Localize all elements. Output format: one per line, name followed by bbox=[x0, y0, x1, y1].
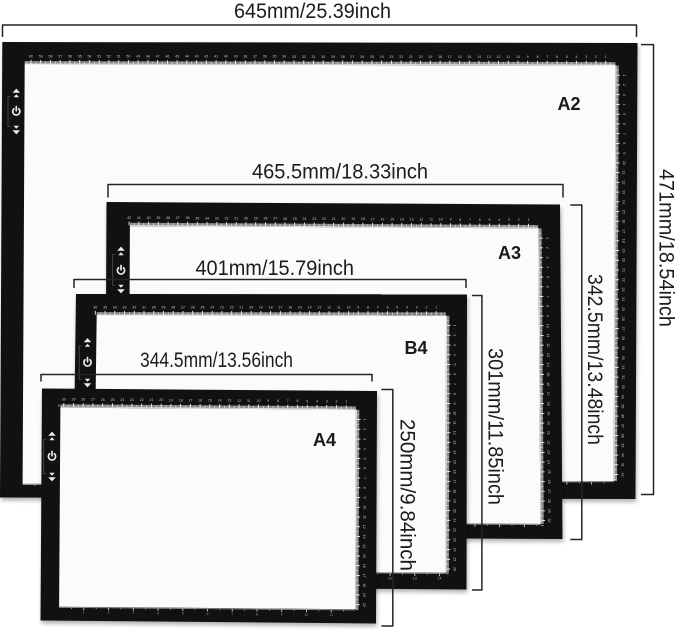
svg-text:35: 35 bbox=[273, 55, 277, 59]
svg-text:52: 52 bbox=[107, 55, 111, 59]
svg-text:33: 33 bbox=[215, 216, 219, 220]
svg-text:50: 50 bbox=[126, 55, 130, 59]
svg-text:57: 57 bbox=[58, 54, 62, 58]
svg-text:54: 54 bbox=[88, 54, 92, 58]
svg-text:1: 1 bbox=[363, 419, 367, 421]
svg-text:6: 6 bbox=[207, 612, 209, 616]
svg-text:32: 32 bbox=[225, 217, 229, 221]
svg-text:7: 7 bbox=[287, 399, 289, 403]
svg-text:22: 22 bbox=[399, 55, 403, 59]
svg-text:2: 2 bbox=[518, 218, 520, 222]
svg-text:8: 8 bbox=[277, 399, 279, 403]
svg-text:17: 17 bbox=[278, 306, 282, 310]
svg-text:8: 8 bbox=[256, 612, 258, 616]
svg-text:A4: A4 bbox=[313, 430, 336, 450]
svg-text:8: 8 bbox=[362, 487, 366, 489]
svg-text:6: 6 bbox=[297, 399, 299, 403]
svg-text:21: 21 bbox=[452, 518, 456, 522]
svg-text:13: 13 bbox=[317, 306, 321, 310]
svg-text:18: 18 bbox=[362, 583, 366, 587]
svg-text:38: 38 bbox=[166, 216, 170, 220]
svg-text:19: 19 bbox=[169, 398, 173, 402]
svg-text:40: 40 bbox=[147, 216, 151, 220]
svg-text:12: 12 bbox=[327, 306, 331, 310]
svg-text:16: 16 bbox=[380, 217, 384, 221]
svg-text:1: 1 bbox=[605, 55, 607, 59]
svg-text:30: 30 bbox=[321, 55, 325, 59]
svg-text:6: 6 bbox=[453, 373, 457, 375]
svg-text:27: 27 bbox=[547, 489, 551, 493]
svg-text:29: 29 bbox=[162, 305, 166, 309]
svg-text:20: 20 bbox=[341, 217, 345, 221]
svg-text:21: 21 bbox=[239, 305, 243, 309]
svg-text:34: 34 bbox=[113, 305, 117, 309]
svg-text:3: 3 bbox=[622, 94, 626, 96]
svg-text:1: 1 bbox=[345, 400, 347, 404]
svg-text:22: 22 bbox=[140, 398, 144, 402]
svg-text:20: 20 bbox=[452, 509, 456, 513]
svg-text:9: 9 bbox=[622, 152, 626, 154]
svg-text:19: 19 bbox=[362, 593, 366, 597]
svg-text:31: 31 bbox=[312, 55, 316, 59]
svg-text:9: 9 bbox=[357, 306, 359, 310]
svg-text:19: 19 bbox=[259, 305, 263, 309]
svg-text:26: 26 bbox=[621, 317, 625, 321]
svg-text:3: 3 bbox=[416, 306, 418, 310]
svg-text:21: 21 bbox=[332, 217, 336, 221]
svg-text:3: 3 bbox=[545, 257, 549, 259]
svg-text:5: 5 bbox=[396, 306, 398, 310]
svg-text:5: 5 bbox=[566, 55, 568, 59]
svg-text:14: 14 bbox=[438, 577, 442, 581]
svg-text:16: 16 bbox=[198, 399, 202, 403]
svg-text:7: 7 bbox=[469, 218, 471, 222]
svg-text:34: 34 bbox=[282, 55, 286, 59]
svg-text:32: 32 bbox=[302, 55, 306, 59]
svg-text:26: 26 bbox=[452, 567, 456, 571]
svg-text:2: 2 bbox=[363, 428, 367, 430]
svg-text:28: 28 bbox=[621, 336, 625, 340]
svg-text:34: 34 bbox=[205, 216, 209, 220]
svg-text:51: 51 bbox=[117, 55, 121, 59]
svg-text:37: 37 bbox=[176, 216, 180, 220]
svg-text:28: 28 bbox=[171, 305, 175, 309]
svg-text:3: 3 bbox=[363, 438, 367, 440]
svg-text:7: 7 bbox=[546, 55, 548, 59]
svg-text:56: 56 bbox=[68, 54, 72, 58]
svg-text:344.5mm/13.56inch: 344.5mm/13.56inch bbox=[140, 348, 293, 372]
svg-text:19: 19 bbox=[621, 249, 625, 253]
svg-text:12: 12 bbox=[622, 180, 626, 184]
svg-text:58: 58 bbox=[49, 54, 53, 58]
svg-text:13: 13 bbox=[362, 535, 366, 539]
svg-text:31: 31 bbox=[142, 305, 146, 309]
svg-text:301mm/11.85inch: 301mm/11.85inch bbox=[483, 348, 507, 505]
svg-text:27: 27 bbox=[91, 398, 95, 402]
svg-text:27: 27 bbox=[621, 327, 625, 331]
svg-text:20: 20 bbox=[362, 603, 366, 607]
svg-text:13: 13 bbox=[227, 399, 231, 403]
svg-text:15: 15 bbox=[546, 372, 550, 376]
svg-text:19: 19 bbox=[546, 411, 550, 415]
svg-text:24: 24 bbox=[210, 305, 214, 309]
svg-text:21: 21 bbox=[149, 398, 153, 402]
svg-text:34: 34 bbox=[621, 395, 625, 399]
svg-text:5: 5 bbox=[453, 364, 457, 366]
svg-text:44: 44 bbox=[185, 55, 189, 59]
svg-text:5: 5 bbox=[622, 113, 626, 115]
svg-text:7: 7 bbox=[622, 133, 626, 135]
svg-text:6: 6 bbox=[363, 467, 367, 469]
svg-text:15: 15 bbox=[453, 460, 457, 464]
svg-text:10: 10 bbox=[546, 324, 550, 328]
svg-text:18: 18 bbox=[546, 402, 550, 406]
svg-text:40: 40 bbox=[621, 453, 625, 457]
svg-text:24: 24 bbox=[380, 55, 384, 59]
svg-text:2: 2 bbox=[595, 55, 597, 59]
svg-text:6: 6 bbox=[622, 123, 626, 125]
svg-text:4: 4 bbox=[576, 55, 578, 59]
svg-text:13: 13 bbox=[413, 577, 417, 581]
svg-text:22: 22 bbox=[230, 305, 234, 309]
svg-text:14: 14 bbox=[546, 363, 550, 367]
svg-text:4: 4 bbox=[316, 399, 318, 403]
svg-text:6: 6 bbox=[387, 306, 389, 310]
svg-text:16: 16 bbox=[362, 564, 366, 568]
svg-text:24: 24 bbox=[452, 548, 456, 552]
svg-text:11: 11 bbox=[429, 218, 433, 222]
svg-text:4: 4 bbox=[545, 266, 549, 268]
svg-text:45: 45 bbox=[175, 55, 179, 59]
svg-text:12: 12 bbox=[497, 55, 501, 59]
svg-text:11: 11 bbox=[247, 399, 251, 403]
svg-text:18: 18 bbox=[361, 217, 365, 221]
svg-text:37: 37 bbox=[621, 424, 625, 428]
svg-text:10: 10 bbox=[362, 505, 366, 509]
svg-text:43: 43 bbox=[195, 55, 199, 59]
svg-text:26: 26 bbox=[101, 398, 105, 402]
svg-text:7: 7 bbox=[362, 477, 366, 479]
svg-text:12: 12 bbox=[546, 343, 550, 347]
svg-text:25: 25 bbox=[547, 470, 551, 474]
svg-text:9: 9 bbox=[281, 613, 283, 617]
svg-text:1: 1 bbox=[83, 611, 85, 615]
svg-text:17: 17 bbox=[546, 392, 550, 396]
svg-text:12: 12 bbox=[453, 431, 457, 435]
svg-text:25: 25 bbox=[452, 557, 456, 561]
svg-text:10: 10 bbox=[257, 399, 261, 403]
svg-text:30: 30 bbox=[621, 356, 625, 360]
svg-text:471mm/18.54inch: 471mm/18.54inch bbox=[654, 169, 678, 327]
svg-text:6: 6 bbox=[556, 55, 558, 59]
svg-text:40: 40 bbox=[224, 55, 228, 59]
svg-text:14: 14 bbox=[453, 450, 457, 454]
svg-text:25: 25 bbox=[370, 55, 374, 59]
svg-text:250mm/9.84inch: 250mm/9.84inch bbox=[395, 419, 419, 571]
svg-text:7: 7 bbox=[377, 306, 379, 310]
svg-text:1: 1 bbox=[528, 218, 530, 222]
svg-text:12: 12 bbox=[419, 218, 423, 222]
svg-text:A2: A2 bbox=[557, 94, 580, 114]
svg-text:28: 28 bbox=[264, 217, 268, 221]
svg-text:25: 25 bbox=[111, 398, 115, 402]
svg-text:42: 42 bbox=[204, 55, 208, 59]
svg-text:10: 10 bbox=[453, 411, 457, 415]
svg-text:55: 55 bbox=[78, 54, 82, 58]
svg-text:27: 27 bbox=[273, 217, 277, 221]
svg-text:11: 11 bbox=[622, 171, 626, 175]
svg-text:B4: B4 bbox=[404, 338, 427, 358]
svg-text:15: 15 bbox=[208, 399, 212, 403]
svg-text:28: 28 bbox=[81, 398, 85, 402]
svg-text:23: 23 bbox=[621, 288, 625, 292]
svg-text:32: 32 bbox=[621, 375, 625, 379]
svg-text:11: 11 bbox=[506, 55, 510, 59]
svg-text:26: 26 bbox=[360, 55, 364, 59]
svg-text:42: 42 bbox=[127, 216, 131, 220]
svg-text:3: 3 bbox=[585, 55, 587, 59]
svg-text:19: 19 bbox=[351, 217, 355, 221]
svg-text:9: 9 bbox=[267, 399, 269, 403]
svg-text:13: 13 bbox=[453, 440, 457, 444]
svg-text:26: 26 bbox=[191, 305, 195, 309]
svg-text:9: 9 bbox=[450, 218, 452, 222]
svg-text:39: 39 bbox=[156, 216, 160, 220]
svg-text:2: 2 bbox=[453, 334, 457, 336]
svg-text:3: 3 bbox=[508, 218, 510, 222]
svg-text:5: 5 bbox=[306, 399, 308, 403]
svg-text:29: 29 bbox=[621, 346, 625, 350]
svg-text:645mm/25.39inch: 645mm/25.39inch bbox=[234, 0, 391, 23]
svg-text:23: 23 bbox=[220, 305, 224, 309]
svg-text:26: 26 bbox=[283, 217, 287, 221]
svg-text:29: 29 bbox=[72, 398, 76, 402]
svg-text:24: 24 bbox=[547, 460, 551, 464]
svg-text:15: 15 bbox=[467, 55, 471, 59]
svg-text:16: 16 bbox=[622, 219, 626, 223]
svg-text:3: 3 bbox=[132, 611, 134, 615]
svg-text:A3: A3 bbox=[498, 243, 521, 263]
svg-text:20: 20 bbox=[419, 55, 423, 59]
svg-text:10: 10 bbox=[347, 306, 351, 310]
svg-text:4: 4 bbox=[498, 218, 500, 222]
svg-text:41: 41 bbox=[137, 216, 141, 220]
svg-text:9: 9 bbox=[362, 497, 366, 499]
svg-text:13: 13 bbox=[410, 218, 414, 222]
svg-text:14: 14 bbox=[477, 55, 481, 59]
svg-text:15: 15 bbox=[622, 210, 626, 214]
svg-text:6: 6 bbox=[479, 218, 481, 222]
svg-text:5: 5 bbox=[363, 458, 367, 460]
svg-text:14: 14 bbox=[218, 399, 222, 403]
svg-text:41: 41 bbox=[214, 55, 218, 59]
svg-text:12: 12 bbox=[388, 576, 392, 580]
svg-text:18: 18 bbox=[621, 239, 625, 243]
svg-text:14: 14 bbox=[400, 217, 404, 221]
svg-text:2: 2 bbox=[426, 306, 428, 310]
svg-text:465.5mm/18.33inch: 465.5mm/18.33inch bbox=[252, 160, 428, 184]
svg-text:4: 4 bbox=[157, 612, 159, 616]
svg-text:4: 4 bbox=[622, 104, 626, 106]
svg-text:4: 4 bbox=[453, 354, 457, 356]
svg-text:23: 23 bbox=[389, 55, 393, 59]
svg-text:30: 30 bbox=[244, 217, 248, 221]
svg-text:16: 16 bbox=[546, 382, 550, 386]
svg-text:11: 11 bbox=[546, 334, 550, 338]
svg-text:39: 39 bbox=[234, 55, 238, 59]
svg-text:41: 41 bbox=[620, 463, 624, 467]
svg-text:2: 2 bbox=[622, 84, 626, 86]
svg-text:19: 19 bbox=[453, 499, 457, 503]
svg-text:21: 21 bbox=[621, 268, 625, 272]
svg-text:20: 20 bbox=[546, 421, 550, 425]
svg-text:35: 35 bbox=[103, 305, 107, 309]
svg-text:11: 11 bbox=[362, 515, 366, 519]
svg-text:21: 21 bbox=[409, 55, 413, 59]
svg-text:23: 23 bbox=[452, 538, 456, 542]
svg-text:1: 1 bbox=[622, 74, 626, 76]
svg-text:47: 47 bbox=[156, 55, 160, 59]
svg-text:46: 46 bbox=[165, 55, 169, 59]
svg-text:12: 12 bbox=[362, 525, 366, 529]
svg-text:15: 15 bbox=[298, 306, 302, 310]
svg-text:28: 28 bbox=[547, 499, 551, 503]
svg-text:9: 9 bbox=[546, 315, 550, 317]
svg-text:8: 8 bbox=[367, 306, 369, 310]
svg-text:35: 35 bbox=[621, 404, 625, 408]
svg-text:36: 36 bbox=[93, 305, 97, 309]
svg-text:10: 10 bbox=[516, 55, 520, 59]
svg-text:2: 2 bbox=[108, 611, 110, 615]
svg-text:3: 3 bbox=[326, 399, 328, 403]
svg-text:7: 7 bbox=[546, 296, 550, 298]
svg-text:2: 2 bbox=[545, 247, 549, 249]
svg-text:35: 35 bbox=[195, 216, 199, 220]
svg-text:24: 24 bbox=[621, 297, 625, 301]
svg-text:4: 4 bbox=[406, 306, 408, 310]
svg-text:6: 6 bbox=[545, 286, 549, 288]
svg-text:22: 22 bbox=[547, 441, 551, 445]
svg-text:11: 11 bbox=[337, 306, 341, 310]
svg-text:49: 49 bbox=[136, 55, 140, 59]
svg-text:33: 33 bbox=[123, 305, 127, 309]
svg-text:33: 33 bbox=[621, 385, 625, 389]
svg-text:29: 29 bbox=[254, 217, 258, 221]
svg-text:16: 16 bbox=[453, 470, 457, 474]
svg-text:18: 18 bbox=[179, 398, 183, 402]
svg-text:36: 36 bbox=[186, 216, 190, 220]
svg-text:38: 38 bbox=[243, 55, 247, 59]
svg-text:60: 60 bbox=[29, 54, 33, 58]
svg-text:14: 14 bbox=[622, 200, 626, 204]
svg-text:39: 39 bbox=[621, 443, 625, 447]
svg-text:53: 53 bbox=[97, 55, 101, 59]
svg-text:15: 15 bbox=[362, 554, 366, 558]
svg-text:17: 17 bbox=[453, 479, 457, 483]
svg-text:48: 48 bbox=[146, 55, 150, 59]
svg-text:36: 36 bbox=[263, 55, 267, 59]
svg-text:13: 13 bbox=[487, 55, 491, 59]
svg-text:42: 42 bbox=[620, 473, 624, 477]
svg-text:31: 31 bbox=[234, 217, 238, 221]
svg-text:20: 20 bbox=[621, 258, 625, 262]
svg-text:18: 18 bbox=[438, 55, 442, 59]
svg-text:24: 24 bbox=[303, 217, 307, 221]
svg-text:25: 25 bbox=[293, 217, 297, 221]
svg-text:59: 59 bbox=[39, 54, 43, 58]
svg-text:17: 17 bbox=[622, 229, 626, 233]
svg-text:11: 11 bbox=[453, 421, 457, 425]
svg-text:14: 14 bbox=[362, 544, 366, 548]
svg-text:10: 10 bbox=[304, 613, 308, 617]
svg-text:401mm/15.79inch: 401mm/15.79inch bbox=[195, 256, 354, 280]
svg-text:23: 23 bbox=[130, 398, 134, 402]
svg-text:2: 2 bbox=[336, 400, 338, 404]
svg-text:19: 19 bbox=[428, 55, 432, 59]
svg-text:25: 25 bbox=[201, 305, 205, 309]
svg-text:20: 20 bbox=[249, 305, 253, 309]
svg-text:20: 20 bbox=[159, 398, 163, 402]
svg-text:30: 30 bbox=[152, 305, 156, 309]
svg-text:26: 26 bbox=[547, 480, 551, 484]
svg-text:21: 21 bbox=[547, 431, 551, 435]
svg-text:30: 30 bbox=[62, 398, 66, 402]
svg-text:18: 18 bbox=[453, 489, 457, 493]
svg-text:36: 36 bbox=[621, 414, 625, 418]
svg-text:3: 3 bbox=[453, 344, 457, 346]
svg-text:37: 37 bbox=[253, 55, 257, 59]
svg-text:8: 8 bbox=[453, 393, 457, 395]
svg-text:12: 12 bbox=[237, 399, 241, 403]
svg-text:31: 31 bbox=[621, 365, 625, 369]
svg-text:8: 8 bbox=[622, 142, 626, 144]
svg-text:342.5mm/13.48inch: 342.5mm/13.48inch bbox=[583, 274, 607, 445]
svg-text:29: 29 bbox=[331, 55, 335, 59]
svg-text:11: 11 bbox=[329, 613, 333, 617]
svg-text:17: 17 bbox=[448, 55, 452, 59]
svg-text:9: 9 bbox=[453, 403, 457, 405]
svg-text:4: 4 bbox=[363, 448, 367, 450]
svg-text:27: 27 bbox=[350, 55, 354, 59]
svg-text:17: 17 bbox=[188, 398, 192, 402]
svg-text:24: 24 bbox=[120, 398, 124, 402]
svg-text:10: 10 bbox=[439, 218, 443, 222]
svg-text:10: 10 bbox=[622, 161, 626, 165]
svg-text:7: 7 bbox=[231, 612, 233, 616]
svg-text:13: 13 bbox=[546, 353, 550, 357]
svg-text:18: 18 bbox=[269, 305, 273, 309]
svg-text:38: 38 bbox=[621, 434, 625, 438]
svg-text:32: 32 bbox=[132, 305, 136, 309]
svg-text:33: 33 bbox=[292, 55, 296, 59]
svg-text:16: 16 bbox=[458, 55, 462, 59]
svg-text:5: 5 bbox=[489, 218, 491, 222]
svg-text:8: 8 bbox=[459, 218, 461, 222]
svg-text:30: 30 bbox=[547, 519, 551, 523]
svg-text:1: 1 bbox=[545, 237, 549, 239]
svg-text:13: 13 bbox=[622, 190, 626, 194]
svg-text:29: 29 bbox=[547, 509, 551, 513]
svg-text:5: 5 bbox=[545, 276, 549, 278]
svg-text:23: 23 bbox=[312, 217, 316, 221]
svg-text:22: 22 bbox=[621, 278, 625, 282]
svg-text:14: 14 bbox=[308, 306, 312, 310]
svg-text:22: 22 bbox=[322, 217, 326, 221]
svg-text:5: 5 bbox=[182, 612, 184, 616]
svg-text:15: 15 bbox=[390, 217, 394, 221]
svg-text:28: 28 bbox=[341, 55, 345, 59]
svg-text:17: 17 bbox=[371, 217, 375, 221]
